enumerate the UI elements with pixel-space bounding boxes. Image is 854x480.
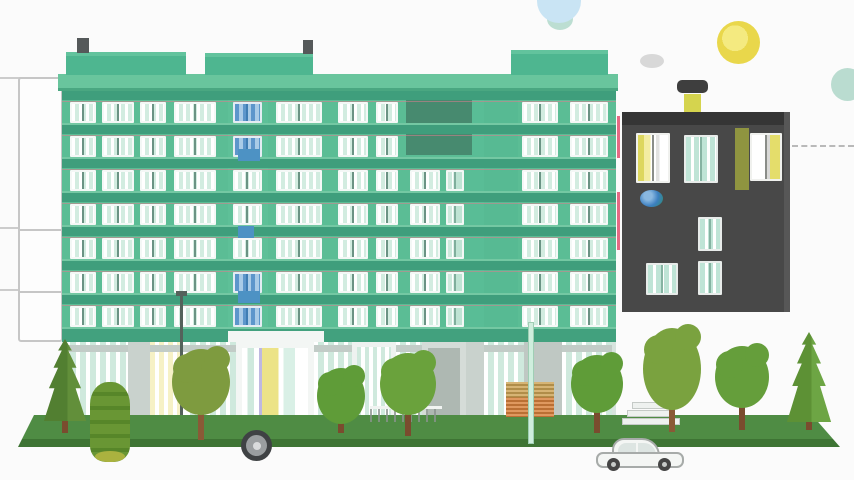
window-mullion xyxy=(298,172,300,189)
tower-divider xyxy=(20,291,61,293)
storefront-wall xyxy=(466,342,484,424)
window-mullion xyxy=(539,206,541,223)
window-mullion xyxy=(588,138,590,155)
apartment-window xyxy=(174,170,216,191)
stairwell-blue-accent xyxy=(238,226,254,238)
window-mullion xyxy=(82,172,84,189)
apartment-window xyxy=(70,306,96,327)
car-wheel xyxy=(658,458,671,471)
downspout xyxy=(528,322,534,444)
apartment-window xyxy=(140,272,166,293)
window-mullion xyxy=(194,172,196,189)
apartment-window xyxy=(446,204,464,225)
window-mullion xyxy=(588,172,590,189)
window-mullion xyxy=(82,274,84,291)
window-mullion xyxy=(82,206,84,223)
apartment-window xyxy=(570,102,608,123)
apartment-window xyxy=(140,306,166,327)
car-wheel-hub xyxy=(611,462,616,467)
window-mullion xyxy=(246,308,248,325)
window-mullion xyxy=(454,206,456,223)
floor-spandrel xyxy=(62,295,616,304)
window-mullion xyxy=(454,172,456,189)
stairwell-window xyxy=(233,238,262,259)
apartment-window xyxy=(70,102,96,123)
apartment-window xyxy=(522,204,558,225)
tree-canopy-lump xyxy=(343,365,365,387)
tree-canopy-lump xyxy=(675,324,701,350)
chimney xyxy=(303,40,313,54)
window-mullion xyxy=(652,135,654,181)
window-mullion xyxy=(386,308,388,325)
apartment-window xyxy=(338,170,368,191)
stairwell-window xyxy=(233,170,262,191)
window-mullion xyxy=(386,172,388,189)
steps-bar xyxy=(627,410,675,417)
apartment-window xyxy=(338,102,368,123)
dark-building-window xyxy=(698,217,722,251)
window-mullion xyxy=(700,137,702,181)
dark-building-window xyxy=(750,133,782,181)
apartment-window xyxy=(522,272,558,293)
window-mullion xyxy=(246,206,248,223)
apartment-window xyxy=(522,170,558,191)
cloud-blob xyxy=(640,54,664,68)
apartment-window xyxy=(446,272,464,293)
tree-canopy-lump xyxy=(204,346,230,372)
apartment-window xyxy=(410,238,440,259)
window-mullion xyxy=(152,240,154,257)
window-mullion xyxy=(424,308,426,325)
stairwell-window-blue xyxy=(233,102,262,123)
apartment-window xyxy=(174,102,216,123)
roof-parapet-top xyxy=(205,53,313,57)
apartment-window xyxy=(102,238,134,259)
entrance-canopy xyxy=(228,331,324,342)
window-mullion xyxy=(117,240,119,257)
apartment-window xyxy=(140,102,166,123)
apartment-window xyxy=(276,136,322,157)
floor-spandrel xyxy=(62,159,616,168)
stairwell-window-blue xyxy=(233,306,262,327)
apartment-window xyxy=(70,136,96,157)
window-mullion xyxy=(454,240,456,257)
window-mullion xyxy=(424,274,426,291)
apartment-window xyxy=(338,204,368,225)
apartment-window xyxy=(410,306,440,327)
apartment-window xyxy=(174,136,216,157)
apartment-window xyxy=(570,272,608,293)
car xyxy=(596,438,684,472)
apartment-window xyxy=(410,170,440,191)
apartment-window xyxy=(376,272,398,293)
window-mullion xyxy=(539,240,541,257)
bush-base-blob xyxy=(95,451,125,462)
stairwell-blue-accent xyxy=(238,149,260,161)
window-mullion xyxy=(117,274,119,291)
floor-spandrel xyxy=(62,125,616,134)
window-mullion xyxy=(194,104,196,121)
car-wheel xyxy=(607,458,620,471)
window-mullion xyxy=(117,206,119,223)
window-mullion xyxy=(539,172,541,189)
window-mullion xyxy=(117,308,119,325)
apartment-window xyxy=(276,238,322,259)
dark-building-window xyxy=(646,263,678,295)
window-mullion xyxy=(298,104,300,121)
floor-spandrel xyxy=(62,193,616,202)
apartment-window xyxy=(102,204,134,225)
tree-canopy-lump xyxy=(381,358,409,386)
apartment-window xyxy=(276,102,322,123)
window-mullion xyxy=(246,172,248,189)
window-mullion xyxy=(117,172,119,189)
window-mullion xyxy=(386,240,388,257)
roof-parapet-top xyxy=(511,50,608,54)
window-mullion xyxy=(82,308,84,325)
blue-ball xyxy=(640,190,663,207)
tree-canopy-lump xyxy=(716,351,743,378)
apartment-window xyxy=(70,272,96,293)
apartment-window xyxy=(522,238,558,259)
roof-slab xyxy=(58,74,618,91)
apartment-window xyxy=(102,306,134,327)
window-mullion xyxy=(454,274,456,291)
chimney xyxy=(77,38,89,53)
apartment-window xyxy=(102,102,134,123)
window-mullion xyxy=(386,206,388,223)
apartment-window xyxy=(410,272,440,293)
window-mullion xyxy=(588,104,590,121)
window-mullion xyxy=(298,138,300,155)
pink-accent-stripe xyxy=(617,116,620,158)
apartment-window xyxy=(376,238,398,259)
window-mullion xyxy=(424,240,426,257)
window-mullion xyxy=(152,172,154,189)
window-mullion xyxy=(352,138,354,155)
window-mullion xyxy=(424,206,426,223)
tree-canopy-lump xyxy=(572,360,598,386)
window-mullion xyxy=(352,172,354,189)
illustration-canvas xyxy=(0,0,854,480)
apartment-window xyxy=(376,306,398,327)
tree-canopy-lump xyxy=(745,343,769,367)
apartment-window xyxy=(570,306,608,327)
apartment-window xyxy=(338,272,368,293)
window-mullion xyxy=(246,104,248,121)
tree-canopy-lump xyxy=(644,335,673,364)
apartment-window xyxy=(570,238,608,259)
tower-divider xyxy=(20,229,61,231)
floor-spandrel xyxy=(62,91,616,100)
dark-building-window xyxy=(698,261,722,295)
pink-accent-stripe xyxy=(617,192,620,250)
apartment-window xyxy=(140,136,166,157)
window-mullion xyxy=(194,138,196,155)
apartment-window xyxy=(276,306,322,327)
window-mullion xyxy=(152,206,154,223)
car-wheel-hub xyxy=(662,462,667,467)
window-mullion xyxy=(352,308,354,325)
apartment-window xyxy=(140,238,166,259)
window-mullion xyxy=(588,308,590,325)
sun xyxy=(717,21,760,64)
storefront-inner xyxy=(242,348,308,422)
apartment-window xyxy=(338,238,368,259)
window-mullion xyxy=(152,138,154,155)
stairwell-window-blue xyxy=(233,272,262,293)
apartment-window xyxy=(276,204,322,225)
window-mullion xyxy=(117,104,119,121)
apartment-window xyxy=(70,170,96,191)
window-mullion xyxy=(298,240,300,257)
storefront-wall xyxy=(128,342,150,424)
apartment-window xyxy=(140,170,166,191)
window-mullion xyxy=(424,172,426,189)
roof-parapet xyxy=(205,53,313,75)
apartment-window xyxy=(446,170,464,191)
apartment-window xyxy=(276,272,322,293)
dark-building-window xyxy=(636,133,670,183)
tree-canopy-lump xyxy=(411,350,436,375)
apartment-window xyxy=(140,204,166,225)
apartment-window xyxy=(410,204,440,225)
lamp-head xyxy=(176,291,187,296)
storefront-transom xyxy=(66,345,128,352)
apartment-window xyxy=(446,238,464,259)
apartment-window xyxy=(376,136,398,157)
tire xyxy=(241,430,272,461)
sky-circle-teal xyxy=(831,68,854,101)
window-mullion xyxy=(386,138,388,155)
apartment-window xyxy=(174,238,216,259)
window-mullion xyxy=(539,274,541,291)
apartment-window xyxy=(446,306,464,327)
window-mullion xyxy=(152,308,154,325)
window-mullion xyxy=(246,274,248,291)
apartment-window xyxy=(70,204,96,225)
window-mullion xyxy=(152,274,154,291)
dark-building-chimney xyxy=(684,94,701,112)
apartment-window xyxy=(570,170,608,191)
background-tower xyxy=(18,77,63,342)
window-mullion xyxy=(454,308,456,325)
apartment-window xyxy=(102,170,134,191)
apartment-window xyxy=(102,272,134,293)
dark-building-right-edge xyxy=(784,112,790,312)
window-mullion xyxy=(194,206,196,223)
apartment-window xyxy=(174,204,216,225)
window-mullion xyxy=(352,274,354,291)
roof-parapet xyxy=(511,50,608,75)
apartment-window xyxy=(70,238,96,259)
window-mullion xyxy=(194,274,196,291)
window-mullion xyxy=(117,138,119,155)
tire-core xyxy=(253,442,261,450)
floor-spandrel xyxy=(62,227,616,236)
dark-building-olive-streak xyxy=(735,128,749,190)
dark-building-window xyxy=(684,135,718,183)
window-mullion xyxy=(194,240,196,257)
window-mullion xyxy=(539,104,541,121)
window-mullion xyxy=(82,138,84,155)
window-mullion xyxy=(152,104,154,121)
stairwell-blue-accent xyxy=(238,291,260,303)
apartment-window xyxy=(376,102,398,123)
dark-building-roof-band xyxy=(622,112,790,125)
bush xyxy=(90,382,130,462)
apartment-window xyxy=(376,204,398,225)
storefront-transom xyxy=(314,345,352,352)
roof-parapet xyxy=(66,52,186,75)
apartment-window xyxy=(570,136,608,157)
window-mullion xyxy=(709,263,711,293)
window-mullion xyxy=(246,240,248,257)
storefront-door-main xyxy=(236,342,314,424)
window-mullion xyxy=(588,240,590,257)
window-mullion xyxy=(298,206,300,223)
apartment-window xyxy=(522,136,558,157)
window-mullion xyxy=(352,240,354,257)
window-mullion xyxy=(709,219,711,249)
apartment-window xyxy=(522,102,558,123)
apartment-window xyxy=(276,170,322,191)
storefront-transom xyxy=(562,345,612,352)
apartment-window xyxy=(338,306,368,327)
apartment-window xyxy=(338,136,368,157)
window-mullion xyxy=(194,308,196,325)
window-mullion xyxy=(82,104,84,121)
window-mullion xyxy=(386,104,388,121)
window-mullion xyxy=(661,265,663,293)
window-mullion xyxy=(82,240,84,257)
window-mullion xyxy=(386,274,388,291)
apartment-window xyxy=(570,204,608,225)
floating-dark-capsule xyxy=(677,80,708,93)
window-mullion xyxy=(298,308,300,325)
sky-circle-blue xyxy=(537,0,581,23)
dashed-guide-line xyxy=(792,145,854,147)
apartment-window xyxy=(376,170,398,191)
window-mullion xyxy=(539,138,541,155)
window-mullion xyxy=(298,274,300,291)
floor-spandrel xyxy=(62,261,616,270)
window-mullion xyxy=(765,135,767,179)
window-mullion xyxy=(539,308,541,325)
storefront-transom xyxy=(484,345,524,352)
apartment-window xyxy=(174,272,216,293)
stairwell-window xyxy=(233,204,262,225)
window-mullion xyxy=(588,274,590,291)
apartment-window xyxy=(102,136,134,157)
pine-tree xyxy=(785,332,833,422)
window-mullion xyxy=(352,104,354,121)
window-mullion xyxy=(352,206,354,223)
window-mullion xyxy=(588,206,590,223)
